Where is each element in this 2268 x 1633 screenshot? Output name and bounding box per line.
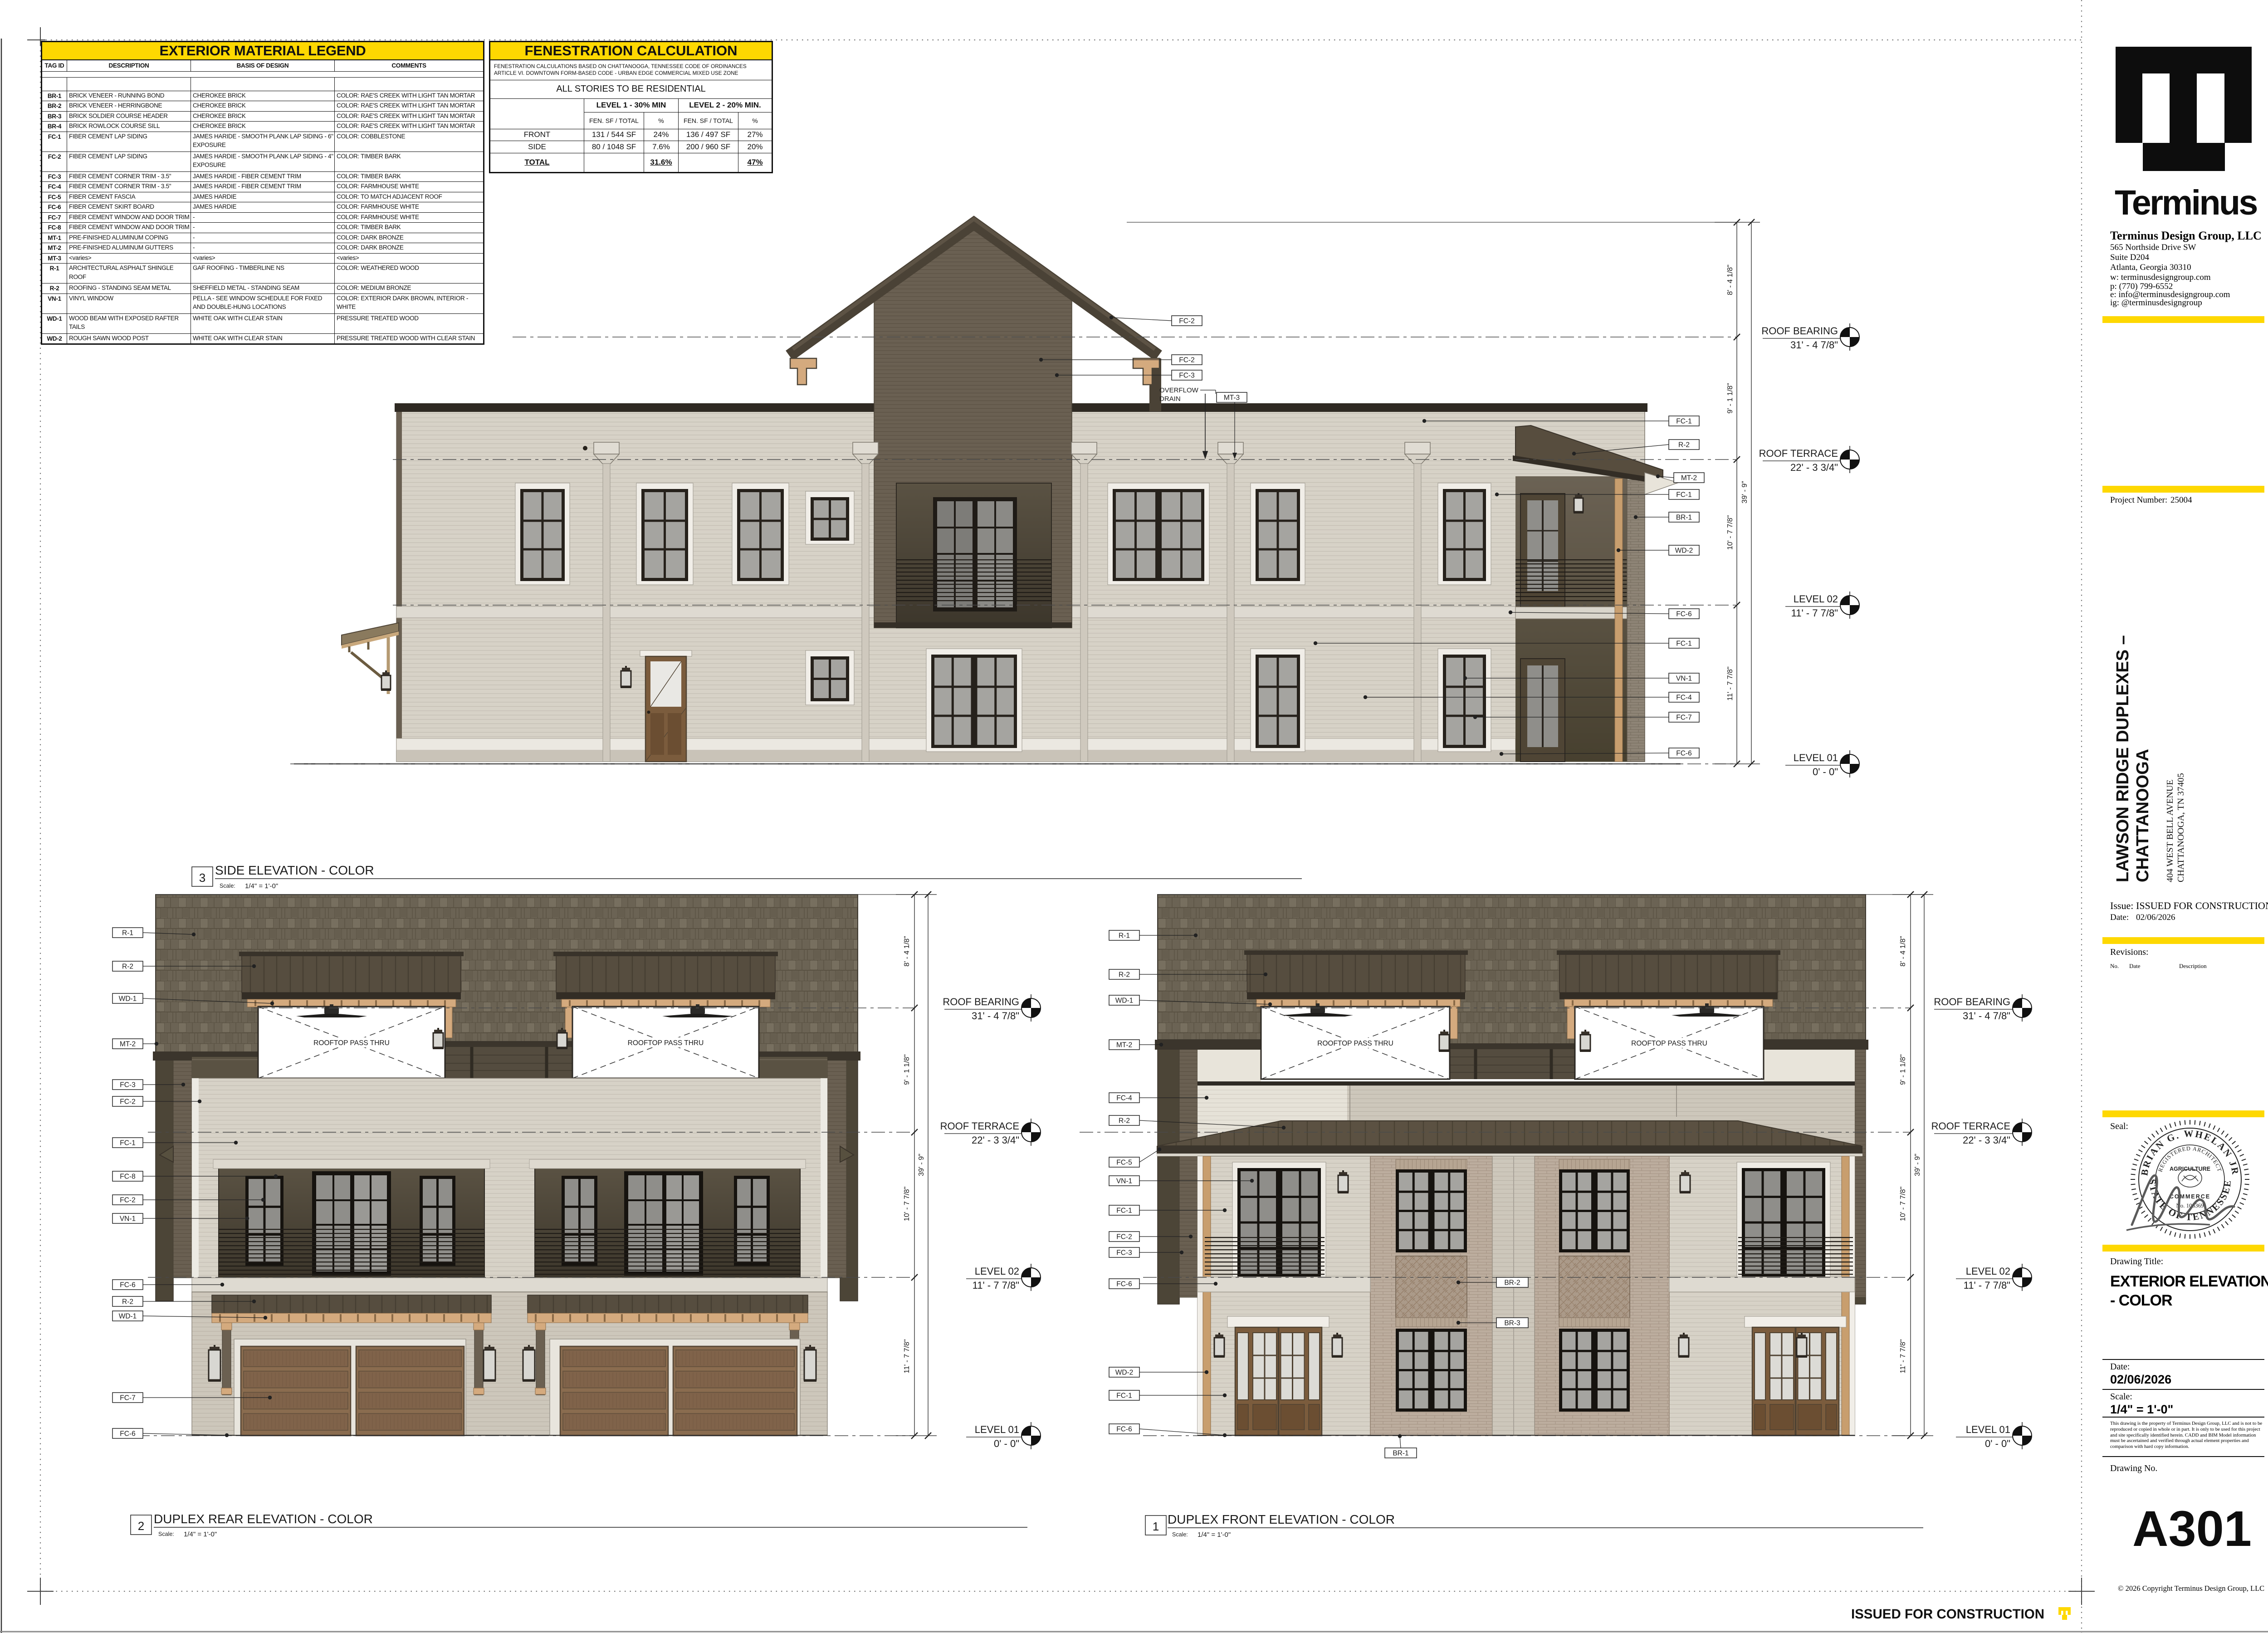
svg-text:22' - 3 3/4": 22' - 3 3/4" [1963, 1134, 2010, 1146]
svg-text:31' - 4 7/8": 31' - 4 7/8" [1963, 1010, 2010, 1022]
svg-text:FC-6: FC-6 [1676, 611, 1691, 618]
svg-text:FC-8: FC-8 [120, 1173, 135, 1181]
svg-text:22' - 3 3/4": 22' - 3 3/4" [972, 1134, 1019, 1146]
svg-text:FC-2: FC-2 [120, 1098, 135, 1106]
svg-text:MT-3: MT-3 [1224, 394, 1240, 402]
svg-text:9' - 1 1/8": 9' - 1 1/8" [903, 1054, 911, 1085]
svg-text:FC-6: FC-6 [1116, 1426, 1132, 1433]
svg-text:0' - 0": 0' - 0" [1813, 766, 1838, 777]
svg-text:FC-7: FC-7 [120, 1394, 135, 1402]
svg-text:FC-4: FC-4 [1676, 694, 1692, 702]
svg-text:ROOFTOP PASS THRU: ROOFTOP PASS THRU [628, 1039, 704, 1047]
svg-text:R-2: R-2 [122, 963, 133, 971]
svg-text:FC-6: FC-6 [120, 1281, 135, 1289]
svg-text:11' - 7 7/8": 11' - 7 7/8" [903, 1339, 911, 1373]
svg-text:1/4" = 1'-0": 1/4" = 1'-0" [1198, 1531, 1231, 1539]
svg-text:11' - 7 7/8": 11' - 7 7/8" [1899, 1339, 1907, 1373]
svg-text:31' - 4 7/8": 31' - 4 7/8" [972, 1010, 1019, 1022]
svg-text:FC-7: FC-7 [1676, 714, 1691, 722]
svg-text:LEVEL 02: LEVEL 02 [975, 1266, 1019, 1277]
svg-text:LEVEL 01: LEVEL 01 [975, 1424, 1019, 1435]
svg-text:R-2: R-2 [1119, 971, 1130, 979]
svg-text:BR-3: BR-3 [1504, 1320, 1520, 1327]
svg-text:9' - 1 1/8": 9' - 1 1/8" [1726, 383, 1734, 413]
svg-text:11' - 7 7/8": 11' - 7 7/8" [1726, 666, 1734, 700]
svg-text:ROOF TERRACE: ROOF TERRACE [1759, 448, 1838, 459]
svg-text:ROOF TERRACE: ROOF TERRACE [940, 1120, 1019, 1132]
svg-text:8' - 4 1/8": 8' - 4 1/8" [903, 936, 911, 966]
svg-text:LEVEL 01: LEVEL 01 [1794, 752, 1838, 763]
svg-text:FC-2: FC-2 [1179, 318, 1194, 325]
svg-text:3: 3 [199, 871, 205, 885]
svg-text:9' - 1 1/8": 9' - 1 1/8" [1899, 1054, 1907, 1085]
svg-text:10' - 7 7/8": 10' - 7 7/8" [1899, 1187, 1907, 1221]
svg-text:1/4" = 1'-0": 1/4" = 1'-0" [184, 1530, 217, 1538]
svg-text:FC-1: FC-1 [1116, 1207, 1132, 1215]
svg-text:Scale:: Scale: [158, 1531, 174, 1537]
svg-text:1/4" = 1'-0": 1/4" = 1'-0" [245, 882, 278, 890]
svg-text:FC-2: FC-2 [120, 1197, 135, 1204]
svg-text:OVERFLOW: OVERFLOW [1159, 386, 1199, 394]
svg-text:MT-2: MT-2 [1681, 474, 1697, 482]
svg-text:FC-6: FC-6 [1116, 1281, 1132, 1288]
svg-text:VN-1: VN-1 [120, 1215, 136, 1223]
svg-text:FC-6: FC-6 [120, 1430, 135, 1438]
svg-text:10' - 7 7/8": 10' - 7 7/8" [1726, 515, 1734, 550]
svg-text:ROOFTOP PASS THRU: ROOFTOP PASS THRU [1631, 1040, 1707, 1047]
svg-text:R-1: R-1 [122, 929, 133, 937]
svg-text:LEVEL 01: LEVEL 01 [1966, 1424, 2010, 1435]
svg-text:8' - 4 1/8": 8' - 4 1/8" [1726, 264, 1734, 295]
svg-text:39' - 9": 39' - 9" [918, 1154, 925, 1176]
svg-text:SIDE ELEVATION - COLOR: SIDE ELEVATION - COLOR [215, 863, 374, 877]
svg-text:2: 2 [138, 1519, 144, 1533]
svg-text:31' - 4 7/8": 31' - 4 7/8" [1790, 339, 1838, 351]
svg-text:R-2: R-2 [1678, 441, 1690, 449]
svg-text:FC-1: FC-1 [1676, 640, 1691, 648]
svg-text:FC-2: FC-2 [1179, 357, 1194, 364]
svg-text:WD-2: WD-2 [1115, 1369, 1134, 1377]
svg-text:BR-1: BR-1 [1393, 1450, 1408, 1457]
svg-text:ROOF BEARING: ROOF BEARING [1934, 996, 2010, 1007]
svg-text:R-2: R-2 [122, 1298, 133, 1306]
svg-text:DUPLEX FRONT ELEVATION - COLOR: DUPLEX FRONT ELEVATION - COLOR [1168, 1512, 1395, 1526]
svg-text:MT-2: MT-2 [120, 1041, 136, 1048]
svg-text:VN-1: VN-1 [1116, 1178, 1132, 1185]
svg-text:FC-1: FC-1 [1116, 1392, 1132, 1400]
svg-text:FC-1: FC-1 [120, 1139, 135, 1147]
svg-text:ROOF BEARING: ROOF BEARING [1761, 325, 1838, 337]
svg-text:LEVEL 02: LEVEL 02 [1966, 1266, 2010, 1277]
svg-text:FC-5: FC-5 [1116, 1159, 1132, 1167]
svg-text:DRAIN: DRAIN [1159, 395, 1181, 403]
svg-text:R-1: R-1 [1119, 932, 1130, 940]
svg-text:FC-3: FC-3 [1116, 1249, 1132, 1257]
svg-text:ISSUED FOR CONSTRUCTION: ISSUED FOR CONSTRUCTION [1851, 1607, 2044, 1622]
svg-text:10' - 7 7/8": 10' - 7 7/8" [903, 1187, 911, 1221]
svg-text:R-2: R-2 [1119, 1117, 1130, 1125]
svg-text:8' - 4 1/8": 8' - 4 1/8" [1899, 936, 1907, 966]
svg-text:11' - 7 7/8": 11' - 7 7/8" [1791, 607, 1838, 619]
svg-text:ROOFTOP PASS THRU: ROOFTOP PASS THRU [1317, 1040, 1393, 1047]
svg-text:BR-2: BR-2 [1504, 1279, 1520, 1287]
svg-text:0' - 0": 0' - 0" [1985, 1438, 2010, 1449]
svg-text:FC-1: FC-1 [1676, 418, 1691, 425]
svg-text:39' - 9": 39' - 9" [1914, 1154, 1921, 1176]
svg-text:Scale:: Scale: [1172, 1531, 1188, 1538]
svg-text:MT-2: MT-2 [1116, 1041, 1132, 1049]
svg-text:FC-3: FC-3 [1179, 372, 1194, 380]
svg-text:FC-3: FC-3 [120, 1081, 135, 1089]
svg-text:DUPLEX REAR ELEVATION - COLOR: DUPLEX REAR ELEVATION - COLOR [154, 1512, 373, 1526]
svg-text:VN-1: VN-1 [1676, 675, 1692, 683]
svg-text:WD-2: WD-2 [1675, 547, 1693, 555]
svg-text:BR-1: BR-1 [1676, 514, 1692, 522]
svg-text:11' - 7 7/8": 11' - 7 7/8" [973, 1280, 1019, 1291]
svg-text:FC-4: FC-4 [1116, 1095, 1132, 1102]
svg-text:WD-1: WD-1 [1115, 997, 1134, 1005]
svg-text:WD-1: WD-1 [119, 1313, 137, 1320]
svg-text:LEVEL 02: LEVEL 02 [1794, 593, 1838, 605]
svg-text:0' - 0": 0' - 0" [994, 1438, 1019, 1449]
svg-text:11' - 7 7/8": 11' - 7 7/8" [1964, 1280, 2010, 1291]
svg-text:22' - 3 3/4": 22' - 3 3/4" [1790, 462, 1838, 473]
svg-text:ROOFTOP PASS THRU: ROOFTOP PASS THRU [313, 1039, 390, 1047]
svg-text:Scale:: Scale: [220, 883, 235, 889]
svg-text:1: 1 [1153, 1520, 1159, 1533]
svg-text:ROOF BEARING: ROOF BEARING [943, 996, 1019, 1007]
svg-text:WD-1: WD-1 [119, 995, 137, 1003]
svg-text:FC-2: FC-2 [1116, 1233, 1132, 1241]
svg-text:39' - 9": 39' - 9" [1741, 481, 1749, 504]
svg-text:ROOF TERRACE: ROOF TERRACE [1931, 1120, 2010, 1132]
svg-text:FC-6: FC-6 [1676, 750, 1691, 758]
svg-text:FC-1: FC-1 [1676, 491, 1691, 499]
